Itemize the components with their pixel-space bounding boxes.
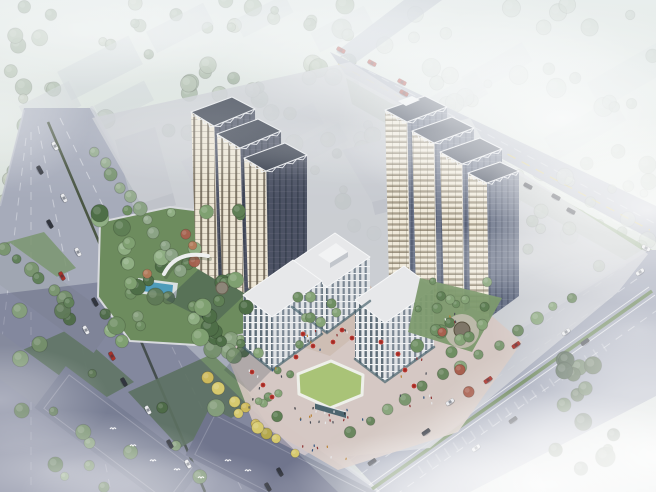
umbrella-center — [351, 337, 352, 338]
tree-highlight — [124, 238, 130, 244]
umbrella-center — [404, 369, 405, 370]
tree-highlight — [475, 351, 479, 355]
tree-highlight — [273, 412, 278, 417]
tree-highlight — [446, 319, 451, 324]
atmosphere-veil — [0, 0, 656, 200]
tree-highlight — [123, 259, 129, 265]
umbrella-center — [397, 353, 398, 354]
tree-highlight — [194, 331, 202, 339]
tree-highlight — [462, 296, 466, 300]
tree-highlight — [135, 203, 141, 209]
tree-highlight — [416, 307, 419, 310]
aerial-render-canvas — [0, 0, 656, 492]
tree-highlight — [412, 341, 418, 347]
person — [324, 412, 325, 415]
tree-highlight — [439, 329, 443, 333]
tree-highlight — [189, 242, 193, 246]
person — [296, 330, 297, 333]
umbrella-center — [295, 356, 296, 357]
tree-highlight — [144, 270, 148, 274]
tree-highlight — [26, 264, 33, 271]
tree-highlight — [438, 293, 442, 297]
tree-highlight — [124, 207, 128, 211]
person — [425, 372, 426, 375]
tree-highlight — [101, 310, 106, 315]
tree-highlight — [50, 286, 55, 291]
tree-highlight — [110, 319, 118, 327]
tree-highlight — [306, 293, 311, 298]
tree-highlight — [126, 278, 132, 284]
person — [314, 444, 315, 447]
tree-highlight — [294, 293, 299, 298]
tree-highlight — [213, 383, 219, 389]
tree-highlight — [238, 336, 241, 339]
umbrella-center — [302, 333, 303, 334]
tree-highlight — [93, 207, 101, 215]
tree-highlight — [255, 349, 260, 354]
person — [333, 410, 334, 413]
tree-highlight — [447, 348, 452, 353]
tree-highlight — [242, 404, 246, 408]
umbrella-center — [271, 396, 272, 397]
tree-highlight — [235, 410, 239, 414]
tree-highlight — [296, 341, 300, 345]
tree-highlight — [209, 401, 217, 409]
tree-highlight — [367, 418, 371, 422]
tree-highlight — [149, 290, 157, 298]
tree-highlight — [432, 326, 437, 331]
umbrella-center — [413, 385, 414, 386]
tree-highlight — [292, 450, 296, 454]
tree-highlight — [439, 370, 444, 375]
person — [400, 394, 401, 397]
umbrella-center — [251, 371, 252, 372]
tree-highlight — [182, 230, 187, 235]
tree-highlight — [333, 309, 337, 313]
person — [307, 340, 308, 343]
tree-highlight — [256, 399, 259, 402]
person — [423, 396, 424, 399]
umbrella-center — [380, 341, 381, 342]
tree-highlight — [234, 206, 240, 212]
tree-highlight — [456, 335, 461, 340]
tree-highlight — [158, 403, 163, 408]
tree-highlight — [228, 350, 235, 357]
person — [248, 406, 249, 409]
tree-highlight — [447, 296, 451, 300]
garden-pavilion-dome — [216, 282, 228, 294]
architectural-rendering — [0, 0, 656, 492]
tree-highlight — [203, 373, 208, 378]
person — [346, 331, 347, 334]
tree-highlight — [115, 221, 123, 229]
scene-layers — [0, 0, 656, 492]
tree-highlight — [134, 312, 139, 317]
person — [302, 445, 303, 448]
tree-highlight — [13, 256, 17, 260]
person — [332, 421, 333, 424]
tree-highlight — [189, 314, 195, 320]
umbrella-center — [262, 384, 263, 385]
tree-highlight — [167, 250, 173, 256]
tree-highlight — [117, 336, 123, 342]
tree-highlight — [481, 303, 485, 307]
tree-highlight — [307, 314, 312, 319]
umbrella-center — [332, 341, 333, 342]
tree-highlight — [287, 371, 290, 374]
tree-highlight — [433, 304, 438, 309]
tree-highlight — [265, 394, 269, 398]
tree-highlight — [230, 398, 235, 403]
tree-highlight — [137, 322, 141, 326]
umbrella-center — [312, 345, 313, 346]
umbrella-center — [341, 329, 342, 330]
tree-highlight — [168, 209, 172, 213]
tree-highlight — [217, 337, 222, 342]
person — [416, 357, 417, 360]
person — [328, 414, 329, 417]
tree-highlight — [149, 228, 154, 233]
tree-highlight — [196, 301, 204, 309]
tree-highlight — [273, 435, 277, 439]
tree-highlight — [456, 366, 461, 371]
tree-highlight — [346, 428, 351, 433]
tree-highlight — [418, 382, 423, 387]
tree-highlight — [465, 333, 470, 338]
tree-highlight — [215, 297, 220, 302]
tree-highlight — [478, 321, 483, 326]
tree-highlight — [317, 318, 322, 323]
tree-highlight — [328, 300, 332, 304]
tree-highlight — [65, 299, 70, 304]
tree-highlight — [56, 305, 63, 312]
tree-highlight — [253, 423, 258, 428]
tree-highlight — [384, 405, 389, 410]
tree-highlight — [276, 390, 279, 393]
tree-highlight — [241, 302, 248, 309]
tree-highlight — [34, 338, 41, 345]
tree-highlight — [230, 274, 237, 281]
tree-highlight — [176, 266, 182, 272]
tree-highlight — [401, 395, 406, 400]
tree-highlight — [189, 302, 194, 307]
tree-highlight — [238, 340, 242, 344]
tree-highlight — [14, 305, 21, 312]
tree-highlight — [161, 242, 166, 247]
tree-highlight — [155, 252, 162, 259]
tree-highlight — [34, 274, 39, 279]
tree-highlight — [144, 216, 148, 220]
person — [401, 375, 402, 378]
tree-highlight — [201, 207, 207, 213]
